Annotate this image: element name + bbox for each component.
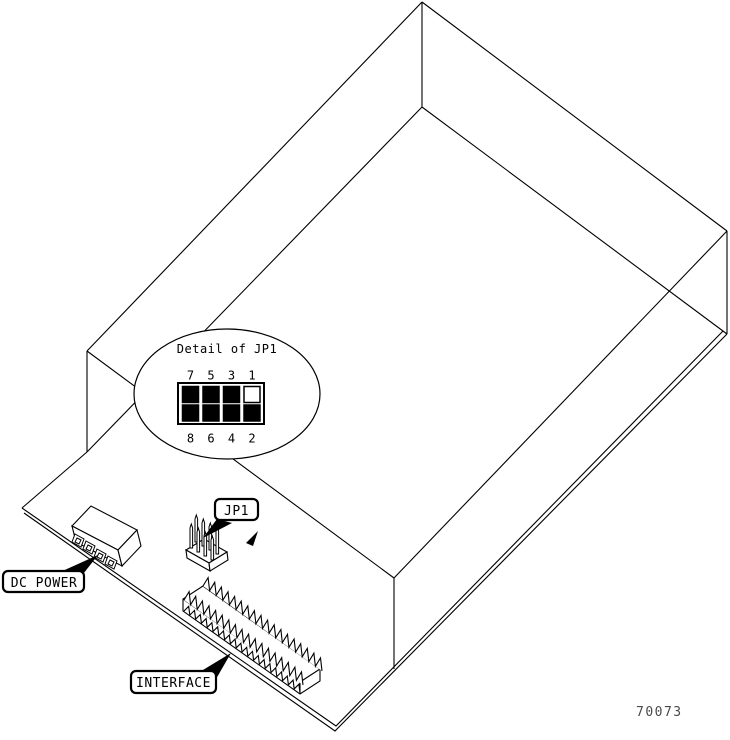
interface-callout: INTERFACE — [131, 653, 231, 693]
jumper-cell-5 — [203, 387, 219, 403]
dc-power-label: DC POWER — [11, 576, 78, 591]
jumper-cell-3 — [224, 387, 240, 403]
jumper-cell-2 — [244, 405, 260, 421]
jumper-cell-4 — [224, 405, 240, 421]
jumper-cell-6 — [203, 405, 219, 421]
drive-diagram: Detail of JP1 7 5 3 1 8 6 4 2 DC — [0, 0, 730, 740]
jp1-label: JP1 — [224, 504, 249, 519]
jp1-pin1-pointer-icon — [246, 531, 258, 546]
jumper-cell-7 — [183, 387, 199, 403]
jumper-cell-8 — [183, 405, 199, 421]
detail-title: Detail of JP1 — [177, 342, 277, 356]
jumper-cell-1 — [244, 387, 260, 403]
pin-label-2: 2 — [248, 432, 255, 446]
pin-label-3: 3 — [228, 369, 235, 383]
dc-power-callout: DC POWER — [3, 555, 98, 592]
jp1-detail-callout: Detail of JP1 7 5 3 1 8 6 4 2 — [134, 329, 320, 459]
figure-number: 70073 — [636, 705, 683, 720]
drive-chassis — [22, 2, 727, 669]
pin-label-1: 1 — [248, 369, 255, 383]
interface-label: INTERFACE — [136, 676, 211, 691]
pin-label-6: 6 — [207, 432, 214, 446]
pin-label-8: 8 — [187, 432, 194, 446]
jp1-callout: JP1 — [203, 499, 258, 538]
pin-label-4: 4 — [228, 432, 235, 446]
pin-label-5: 5 — [207, 369, 214, 383]
chassis-inner-edges — [87, 2, 727, 669]
pin-label-7: 7 — [187, 369, 194, 383]
dc-power-connector — [72, 506, 141, 569]
